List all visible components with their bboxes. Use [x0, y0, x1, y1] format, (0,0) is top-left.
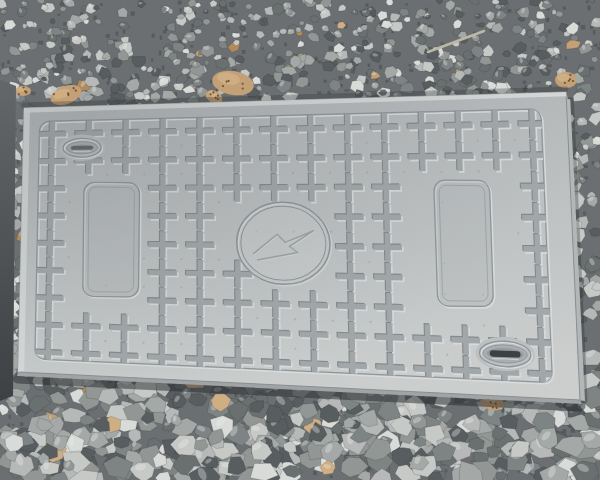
plate-shading-overlay — [18, 92, 580, 400]
utility-cover-photo — [0, 0, 600, 480]
cover-plate — [0, 0, 600, 480]
dark-edge-strip — [0, 80, 16, 401]
